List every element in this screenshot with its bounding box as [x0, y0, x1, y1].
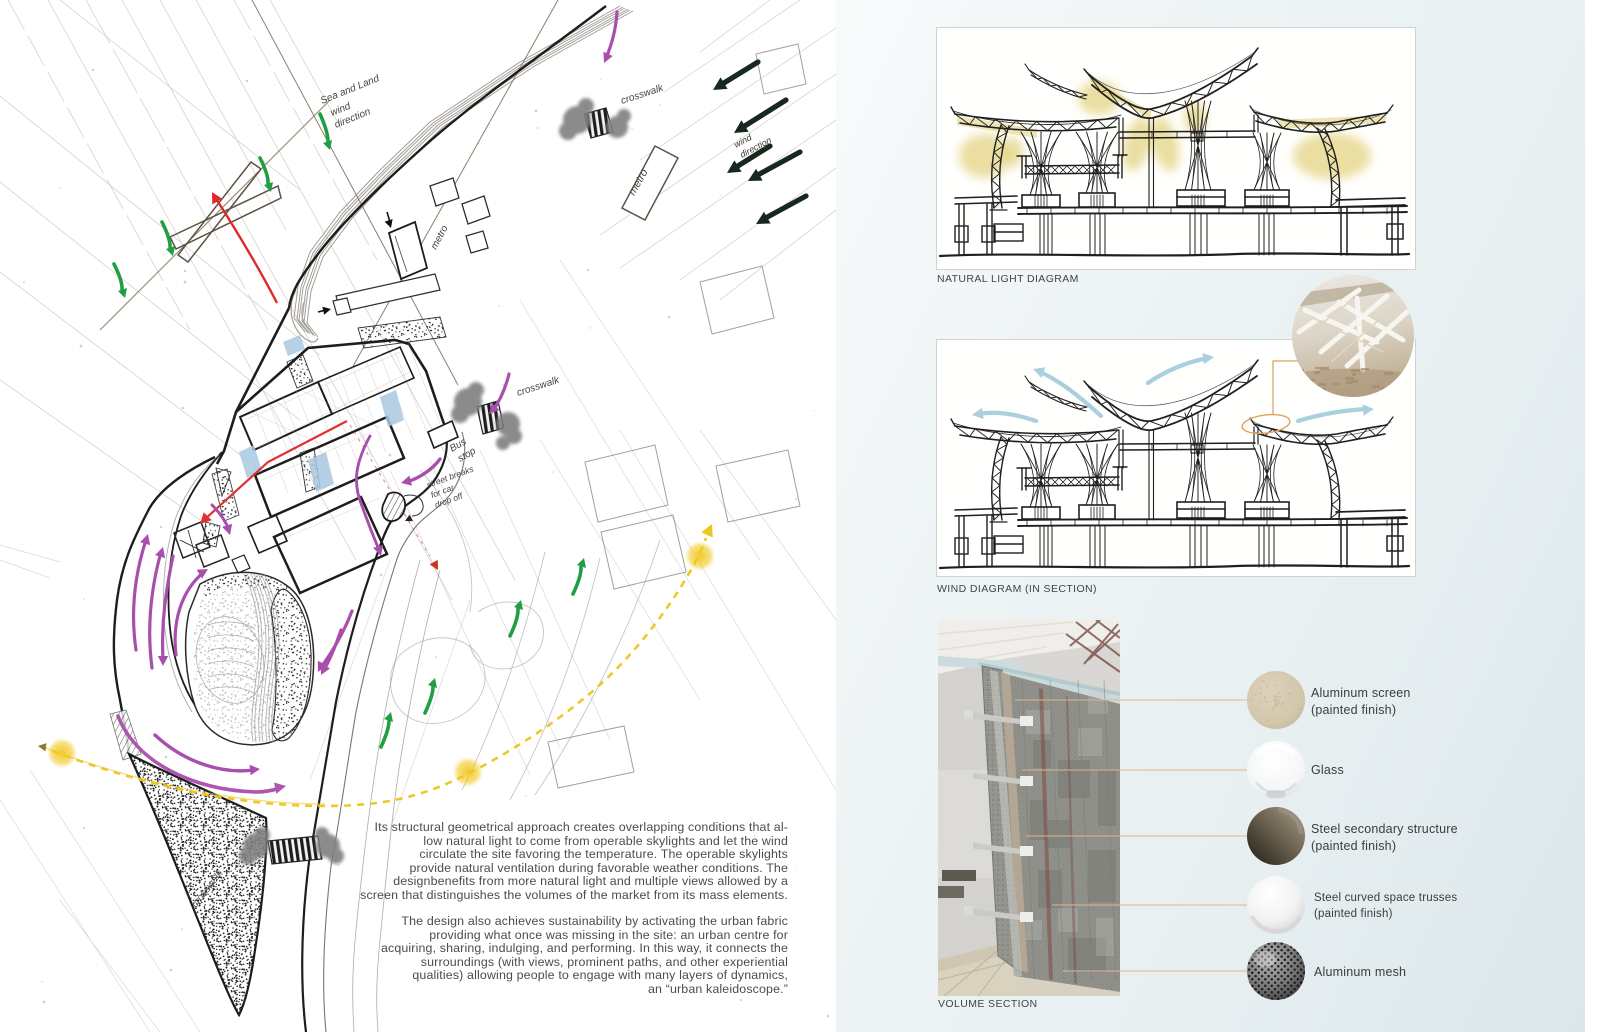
svg-text:Sea and Land: Sea and Land [319, 73, 381, 107]
svg-text:crosswalk: crosswalk [516, 375, 562, 399]
svg-text:metro: metro [429, 223, 451, 251]
svg-text:crosswalk: crosswalk [620, 83, 666, 107]
